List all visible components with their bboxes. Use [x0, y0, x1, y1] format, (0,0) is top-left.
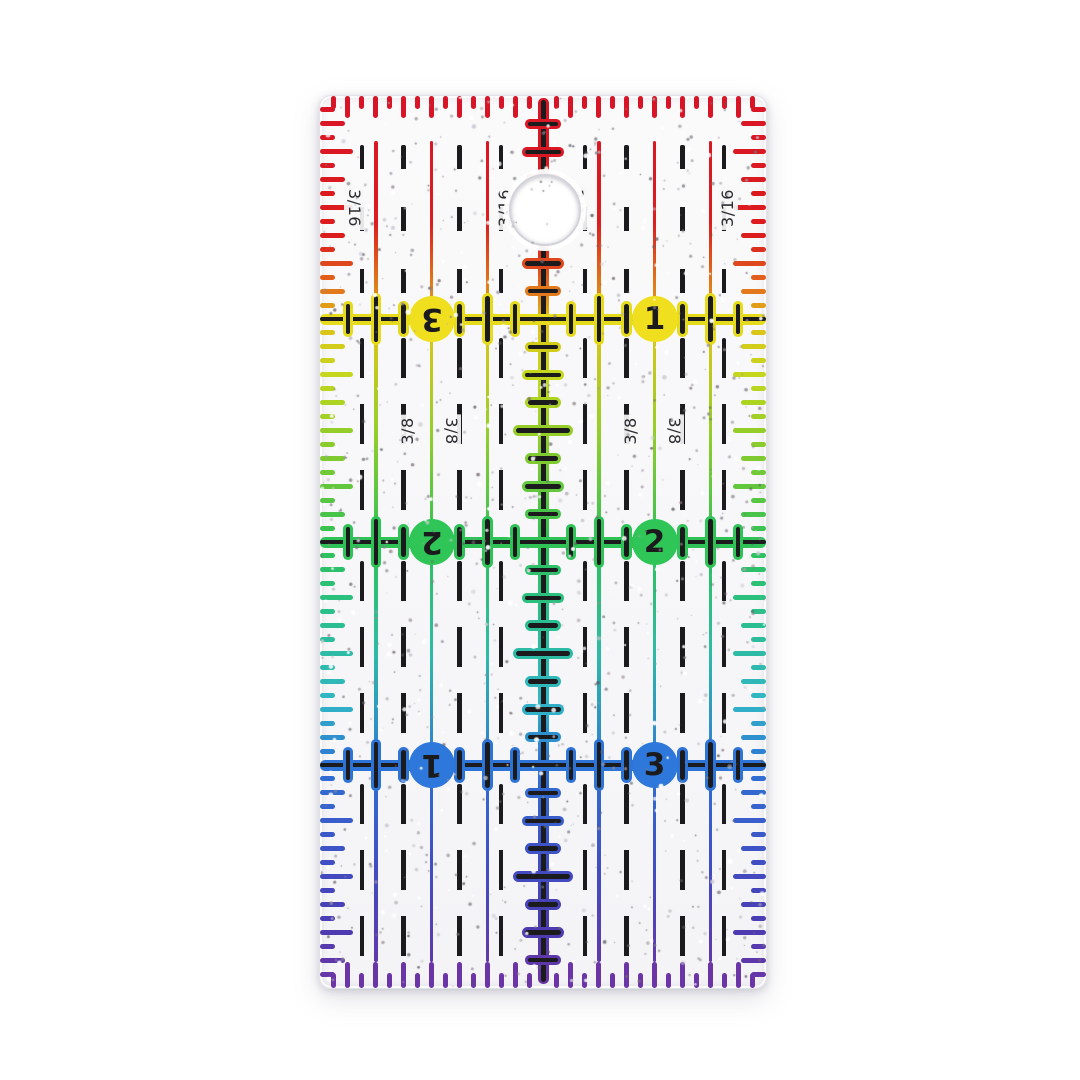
- center-line-tick: [528, 791, 558, 796]
- quarter-inch-line: [486, 334, 490, 527]
- quilting-ruler: 3/163/163/163/163/83/83/83/8312213: [319, 95, 767, 989]
- seam-allowance-dashed-line: [583, 561, 588, 746]
- seam-allowance-dashed-line: [722, 338, 727, 523]
- edge-tick-top: [708, 96, 713, 118]
- seam-allowance-dashed-line: [401, 784, 406, 958]
- edge-tick-left: [320, 400, 345, 405]
- seam-allowance-dashed-line: [360, 561, 365, 746]
- edge-tick-left: [320, 860, 335, 865]
- edge-tick-left: [320, 679, 345, 684]
- seam-allowance-dashed-line: [624, 784, 629, 958]
- inch-line-tick: [624, 527, 629, 557]
- edge-tick-right: [751, 888, 766, 893]
- edge-tick-bottom: [568, 962, 573, 988]
- edge-tick-right: [733, 874, 766, 879]
- seam-allowance-dashed-line: [360, 784, 365, 958]
- inch-line-tick: [624, 750, 629, 780]
- edge-tick-right: [733, 818, 766, 823]
- edge-tick-right: [751, 275, 766, 280]
- edge-tick-right: [751, 553, 766, 558]
- edge-tick-bottom: [401, 962, 406, 988]
- edge-tick-left: [320, 707, 353, 712]
- edge-tick-right: [751, 498, 766, 503]
- center-line-tick: [525, 819, 561, 824]
- edge-tick-left: [320, 790, 345, 795]
- edge-tick-left: [320, 902, 345, 907]
- inch-line-tick: [680, 527, 685, 557]
- edge-tick-bottom: [457, 962, 462, 988]
- edge-tick-left: [320, 846, 345, 851]
- edge-tick-right: [751, 470, 766, 475]
- edge-tick-right: [741, 679, 766, 684]
- edge-tick-right: [751, 135, 766, 140]
- edge-tick-top: [722, 96, 727, 109]
- seam-allowance-dashed-line: [583, 338, 588, 523]
- seam-allowance-dashed-line: [401, 145, 406, 300]
- edge-tick-right: [751, 219, 766, 224]
- edge-tick-bottom: [443, 973, 448, 988]
- edge-tick-left: [320, 372, 353, 377]
- edge-tick-left: [320, 749, 335, 754]
- edge-tick-bottom: [373, 962, 378, 988]
- center-line-tick: [528, 122, 558, 127]
- fraction-label: 3/8: [621, 414, 641, 447]
- edge-tick-left: [320, 581, 335, 586]
- edge-tick-right: [751, 581, 766, 586]
- inch-line-tick: [401, 527, 406, 557]
- edge-tick-left: [320, 888, 335, 893]
- edge-tick-top: [624, 96, 629, 118]
- edge-tick-left: [320, 776, 335, 781]
- edge-tick-left: [320, 930, 353, 935]
- edge-tick-bottom: [610, 973, 615, 988]
- edge-tick-bottom: [415, 973, 420, 988]
- edge-tick-right: [751, 358, 766, 363]
- measurement-number-badge: 3: [632, 742, 678, 788]
- inch-line-tick: [513, 304, 518, 334]
- seam-allowance-dashed-line: [401, 561, 406, 746]
- edge-tick-left: [320, 958, 345, 963]
- quarter-inch-line: [653, 141, 657, 304]
- edge-tick-left: [320, 163, 335, 168]
- edge-tick-right: [741, 512, 766, 517]
- edge-tick-top: [359, 96, 364, 109]
- seam-allowance-dashed-line: [680, 561, 685, 746]
- edge-tick-left: [320, 247, 335, 252]
- inch-line-tick: [597, 519, 602, 565]
- quarter-inch-line: [597, 141, 601, 304]
- edge-tick-bottom: [345, 962, 350, 988]
- inch-line-tick: [597, 742, 602, 788]
- seam-allowance-dashed-line: [457, 784, 462, 958]
- edge-tick-left: [320, 735, 345, 740]
- edge-tick-right: [751, 832, 766, 837]
- edge-tick-left: [320, 609, 335, 614]
- inch-line-tick: [485, 296, 490, 342]
- inch-line-tick: [485, 742, 490, 788]
- edge-tick-bottom: [666, 973, 671, 988]
- edge-tick-bottom: [694, 973, 699, 988]
- seam-allowance-dashed-line: [457, 561, 462, 746]
- edge-tick-bottom: [596, 962, 601, 988]
- quarter-inch-line: [486, 141, 490, 304]
- inch-line-tick: [708, 519, 713, 565]
- center-line-tick: [525, 930, 561, 935]
- center-line-tick: [525, 373, 561, 378]
- measurement-number: 2: [632, 519, 678, 565]
- edge-tick-top: [596, 96, 601, 118]
- center-line-tick: [528, 289, 558, 294]
- edge-tick-top: [638, 96, 643, 109]
- quarter-inch-line: [374, 557, 378, 750]
- quarter-inch-line: [597, 334, 601, 527]
- quarter-inch-line: [430, 780, 434, 962]
- edge-tick-left: [320, 665, 335, 670]
- center-line-tick: [516, 874, 570, 879]
- edge-tick-right: [751, 637, 766, 642]
- edge-tick-left: [320, 804, 335, 809]
- inch-line-tick: [569, 750, 574, 780]
- seam-allowance-dashed-line: [583, 784, 588, 958]
- edge-tick-bottom: [499, 973, 504, 988]
- inch-line-tick: [736, 304, 741, 334]
- quarter-inch-line: [653, 780, 657, 962]
- inch-line-tick: [457, 750, 462, 780]
- edge-tick-left: [320, 330, 335, 335]
- edge-tick-bottom: [485, 962, 490, 988]
- measurement-number: 1: [632, 296, 678, 342]
- quarter-inch-line: [430, 141, 434, 304]
- edge-tick-left: [320, 567, 345, 572]
- edge-tick-left: [320, 233, 345, 238]
- fraction-label: 3/16: [344, 186, 364, 230]
- edge-tick-right: [741, 177, 766, 182]
- measurement-number: 1: [409, 742, 455, 788]
- seam-allowance-dashed-line: [722, 784, 727, 958]
- seam-allowance-dashed-line: [680, 784, 685, 958]
- inch-line-tick: [401, 304, 406, 334]
- quarter-inch-line: [486, 780, 490, 962]
- edge-tick-right: [751, 330, 766, 335]
- edge-tick-bottom: [527, 973, 532, 988]
- quarter-inch-line: [709, 141, 713, 304]
- quarter-inch-line: [653, 334, 657, 527]
- measurement-number-badge: 1: [632, 296, 678, 342]
- edge-tick-bottom: [638, 973, 643, 988]
- inch-line: [320, 763, 766, 768]
- product-photo-scene: 3/163/163/163/163/83/83/83/8312213: [0, 0, 1080, 1080]
- edge-tick-left: [320, 623, 345, 628]
- edge-tick-top: [443, 96, 448, 109]
- fraction-label: 3/8: [664, 414, 684, 447]
- edge-tick-bottom: [722, 973, 727, 988]
- inch-line-tick: [374, 742, 379, 788]
- inch-line-tick: [708, 296, 713, 342]
- edge-tick-left: [320, 693, 335, 698]
- center-line-tick: [528, 400, 558, 405]
- edge-tick-top: [429, 96, 434, 118]
- edge-tick-top: [694, 96, 699, 109]
- edge-tick-right: [751, 944, 766, 949]
- edge-tick-right: [751, 804, 766, 809]
- edge-tick-right: [751, 191, 766, 196]
- inch-line: [320, 540, 766, 545]
- center-line-tick: [525, 596, 561, 601]
- inch-line-tick: [736, 750, 741, 780]
- edge-tick-right: [751, 972, 766, 977]
- measurement-number-badge: 3: [409, 296, 455, 342]
- edge-tick-top: [652, 96, 657, 118]
- center-line-tick: [528, 735, 558, 740]
- edge-tick-right: [741, 400, 766, 405]
- inch-line-tick: [708, 742, 713, 788]
- center-line-tick: [525, 707, 561, 712]
- edge-tick-left: [320, 428, 353, 433]
- center-line-tick: [528, 512, 558, 517]
- inch-line-tick: [569, 304, 574, 334]
- inch-line-tick: [346, 527, 351, 557]
- edge-tick-right: [741, 289, 766, 294]
- edge-tick-top: [499, 96, 504, 109]
- edge-tick-top: [610, 96, 615, 109]
- edge-tick-left: [320, 219, 335, 224]
- inch-line-tick: [680, 750, 685, 780]
- quarter-inch-line: [709, 780, 713, 962]
- edge-tick-top: [736, 96, 741, 118]
- edge-tick-right: [741, 623, 766, 628]
- edge-tick-bottom: [554, 973, 559, 988]
- edge-tick-right: [733, 707, 766, 712]
- edge-tick-left: [320, 498, 335, 503]
- inch-line-tick: [374, 519, 379, 565]
- edge-tick-bottom: [387, 973, 392, 988]
- edge-tick-right: [751, 414, 766, 419]
- seam-allowance-dashed-line: [360, 338, 365, 523]
- edge-tick-top: [401, 96, 406, 118]
- edge-tick-left: [320, 818, 353, 823]
- edge-tick-right: [741, 121, 766, 126]
- edge-tick-left: [320, 275, 335, 280]
- edge-tick-right: [733, 930, 766, 935]
- edge-tick-right: [741, 958, 766, 963]
- edge-tick-top: [485, 96, 490, 118]
- edge-tick-right: [741, 735, 766, 740]
- edge-tick-right: [751, 303, 766, 308]
- quarter-inch-line: [709, 334, 713, 527]
- measurement-number: 2: [409, 519, 455, 565]
- edge-tick-right: [741, 902, 766, 907]
- edge-tick-left: [320, 289, 345, 294]
- quarter-inch-line: [430, 557, 434, 750]
- edge-tick-left: [320, 637, 335, 642]
- inch-line-tick: [569, 527, 574, 557]
- fraction-label: 3/8: [398, 414, 418, 447]
- inch-line-tick: [624, 304, 629, 334]
- edge-tick-right: [733, 651, 766, 656]
- inch-line-tick: [597, 296, 602, 342]
- edge-tick-left: [320, 177, 345, 182]
- seam-allowance-dashed-line: [499, 784, 504, 958]
- edge-tick-top: [415, 96, 420, 109]
- edge-tick-right: [741, 456, 766, 461]
- edge-tick-right: [751, 609, 766, 614]
- edge-tick-bottom: [624, 962, 629, 988]
- edge-tick-left: [320, 386, 335, 391]
- edge-tick-left: [320, 358, 335, 363]
- edge-tick-bottom: [359, 973, 364, 988]
- edge-tick-right: [751, 721, 766, 726]
- edge-tick-bottom: [429, 962, 434, 988]
- inch-line-tick: [513, 750, 518, 780]
- edge-tick-right: [751, 749, 766, 754]
- seam-allowance-dashed-line: [624, 561, 629, 746]
- edge-tick-top: [527, 96, 532, 109]
- fraction-label: 3/8: [441, 414, 461, 447]
- edge-tick-top: [666, 96, 671, 109]
- edge-tick-left: [320, 470, 335, 475]
- center-line-tick: [528, 623, 558, 628]
- edge-tick-bottom: [652, 962, 657, 988]
- edge-tick-right: [751, 442, 766, 447]
- edge-tick-left: [320, 832, 335, 837]
- fraction-label: 3/16: [718, 186, 738, 230]
- edge-tick-right: [751, 860, 766, 865]
- center-line-tick: [528, 902, 558, 907]
- seam-allowance-dashed-line: [624, 145, 629, 300]
- center-line-tick: [528, 568, 558, 573]
- edge-tick-right: [751, 776, 766, 781]
- inch-line-tick: [485, 519, 490, 565]
- quarter-inch-line: [374, 780, 378, 962]
- inch-line-tick: [513, 527, 518, 557]
- seam-allowance-dashed-line: [499, 338, 504, 523]
- center-line-tick: [516, 428, 570, 433]
- edge-tick-bottom: [582, 973, 587, 988]
- edge-tick-right: [751, 163, 766, 168]
- center-line-tick: [525, 150, 561, 155]
- center-line-tick: [528, 958, 558, 963]
- edge-tick-left: [320, 512, 345, 517]
- edge-tick-right: [751, 526, 766, 531]
- edge-tick-left: [320, 721, 335, 726]
- edge-tick-top: [568, 96, 573, 118]
- inch-line: [320, 317, 766, 322]
- quarter-inch-line: [709, 557, 713, 750]
- edge-tick-left: [320, 944, 335, 949]
- edge-tick-top: [387, 96, 392, 109]
- quarter-inch-line: [597, 780, 601, 962]
- edge-tick-right: [733, 149, 766, 154]
- edge-tick-left: [320, 972, 335, 977]
- edge-tick-right: [751, 386, 766, 391]
- edge-tick-top: [457, 96, 462, 118]
- measurement-number-badge: 2: [409, 519, 455, 565]
- edge-tick-left: [320, 261, 353, 266]
- edge-tick-right: [733, 372, 766, 377]
- edge-tick-right: [741, 344, 766, 349]
- hanging-hole: [509, 174, 581, 246]
- edge-tick-left: [320, 553, 335, 558]
- measurement-number: 3: [632, 742, 678, 788]
- inch-line-tick: [457, 304, 462, 334]
- center-line-tick: [528, 345, 558, 350]
- edge-tick-left: [320, 595, 353, 600]
- edge-tick-top: [582, 96, 587, 109]
- edge-tick-left: [320, 526, 335, 531]
- seam-allowance-dashed-line: [722, 561, 727, 746]
- center-line-tick: [528, 456, 558, 461]
- inch-line-tick: [680, 304, 685, 334]
- quarter-inch-line: [430, 334, 434, 527]
- edge-tick-left: [320, 456, 345, 461]
- inch-line-tick: [346, 750, 351, 780]
- edge-tick-bottom: [708, 962, 713, 988]
- edge-tick-right: [751, 247, 766, 252]
- edge-tick-bottom: [471, 973, 476, 988]
- center-line-tick: [528, 846, 558, 851]
- edge-tick-right: [751, 107, 766, 112]
- quarter-inch-line: [374, 334, 378, 527]
- edge-tick-left: [320, 484, 353, 489]
- quarter-inch-line: [597, 557, 601, 750]
- inch-line-tick: [374, 296, 379, 342]
- edge-tick-right: [741, 567, 766, 572]
- inch-line-tick: [457, 527, 462, 557]
- edge-tick-bottom: [513, 962, 518, 988]
- edge-tick-top: [345, 96, 350, 118]
- edge-tick-right: [741, 233, 766, 238]
- edge-tick-left: [320, 107, 335, 112]
- edge-tick-left: [320, 344, 345, 349]
- edge-tick-right: [741, 846, 766, 851]
- edge-tick-right: [751, 665, 766, 670]
- measurement-number-badge: 1: [409, 742, 455, 788]
- edge-tick-bottom: [680, 962, 685, 988]
- center-line-tick: [525, 484, 561, 489]
- edge-tick-top: [554, 96, 559, 109]
- edge-tick-right: [751, 693, 766, 698]
- edge-tick-left: [320, 874, 353, 879]
- seam-allowance-dashed-line: [499, 561, 504, 746]
- edge-tick-left: [320, 414, 335, 419]
- seam-allowance-dashed-line: [457, 145, 462, 300]
- edge-tick-right: [733, 428, 766, 433]
- quarter-inch-line: [653, 557, 657, 750]
- center-line-tick: [516, 651, 570, 656]
- measurement-number: 3: [409, 296, 455, 342]
- edge-tick-left: [320, 149, 353, 154]
- edge-tick-left: [320, 191, 335, 196]
- quarter-inch-line: [374, 141, 378, 304]
- inch-line-tick: [736, 527, 741, 557]
- center-line-tick: [525, 261, 561, 266]
- seam-allowance-dashed-line: [680, 145, 685, 300]
- edge-tick-left: [320, 121, 345, 126]
- edge-tick-top: [513, 96, 518, 118]
- edge-tick-top: [680, 96, 685, 118]
- measurement-number-badge: 2: [632, 519, 678, 565]
- edge-tick-right: [751, 916, 766, 921]
- edge-tick-top: [373, 96, 378, 118]
- edge-tick-right: [733, 484, 766, 489]
- edge-tick-left: [320, 303, 335, 308]
- edge-tick-left: [320, 135, 335, 140]
- center-line-tick: [528, 679, 558, 684]
- edge-tick-left: [320, 442, 335, 447]
- edge-tick-bottom: [736, 962, 741, 988]
- quarter-inch-line: [486, 557, 490, 750]
- edge-tick-left: [320, 651, 353, 656]
